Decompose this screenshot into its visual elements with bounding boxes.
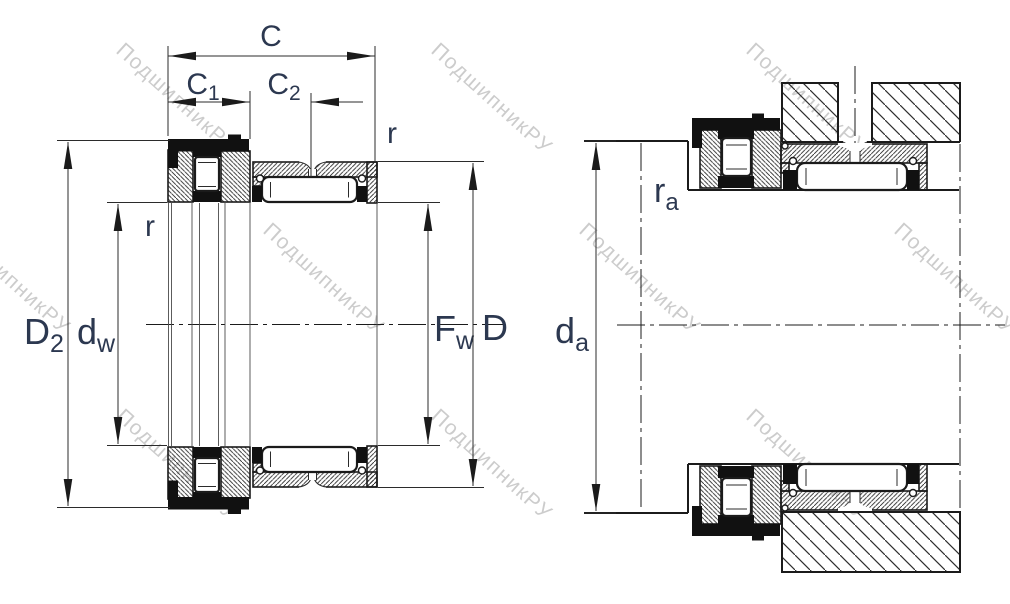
cage-end — [357, 186, 367, 202]
thrust-washer — [700, 466, 721, 524]
dim-da: da — [555, 141, 616, 513]
cage-end — [252, 186, 262, 202]
dim-label-ra: ra — [654, 172, 679, 216]
seal-lip — [692, 506, 702, 536]
inner-collar — [221, 447, 250, 498]
thrust-cage-band — [718, 466, 754, 478]
thrust-cage-band — [193, 447, 221, 458]
cage-end — [783, 464, 797, 484]
dim-label-C1: C1 — [186, 68, 219, 105]
seal-cap — [168, 497, 249, 514]
seal-lip — [692, 118, 702, 148]
dim-label-C: C — [260, 20, 282, 53]
sleeve-flange — [919, 163, 927, 190]
needle-roller — [262, 177, 357, 202]
seal-cap — [692, 524, 780, 541]
right-view-mounted-section: da ra — [555, 66, 1005, 572]
thrust-roller — [722, 138, 751, 176]
watermark-layer: ПодшипникРУ ПодшипникРУ ПодшипникРУ Подш… — [0, 39, 1010, 525]
inner-collar — [752, 466, 781, 524]
seal-lip — [168, 139, 178, 168]
bore-corner-radius — [782, 505, 788, 511]
watermark-text: ПодшипникРУ — [427, 39, 557, 159]
bearing-technical-drawing: ПодшипникРУ ПодшипникРУ ПодшипникРУ Подш… — [0, 0, 1010, 604]
sleeve-flange — [367, 162, 377, 203]
thrust-roller — [722, 478, 751, 516]
dim-label-C2: C2 — [267, 68, 300, 105]
watermark-text: ПодшипникРУ — [427, 405, 557, 525]
dim-label-dw: dw — [77, 311, 116, 358]
cage-end — [783, 170, 797, 190]
cage-end — [357, 447, 367, 463]
needle-roller — [797, 163, 907, 190]
left-view-cross-section: C C1 C2 D2 dw — [24, 20, 508, 514]
retainer-pin — [790, 490, 797, 497]
cage-end — [907, 464, 919, 484]
inner-collar — [221, 151, 250, 202]
thrust-cage-band — [718, 176, 754, 188]
lower-section — [168, 446, 377, 514]
needle-roller — [262, 447, 357, 472]
upper-section — [168, 135, 377, 204]
thrust-washer — [700, 130, 721, 188]
dim-label-D: D — [482, 307, 508, 348]
watermark-text: ПодшипникРУ — [575, 219, 705, 339]
retainer-pin — [359, 467, 366, 474]
sleeve-flange — [367, 446, 377, 487]
retainer-pin — [257, 467, 264, 474]
cage-end — [252, 447, 262, 463]
dim-label-Fw: Fw — [434, 308, 475, 355]
inner-collar — [752, 130, 781, 188]
needle-roller — [797, 464, 907, 491]
retainer-pin — [359, 175, 366, 182]
cage-end — [907, 170, 919, 190]
housing-bottom — [782, 512, 960, 572]
watermark-text: ПодшипникРУ — [259, 219, 389, 339]
seal-cap — [692, 114, 780, 131]
seal-lip — [168, 481, 178, 510]
watermark-text: ПодшипникРУ — [890, 219, 1010, 339]
sleeve-flange — [919, 464, 927, 491]
retainer-pin — [790, 158, 797, 165]
dim-label-r-outer: r — [387, 117, 397, 150]
retainer-pin — [910, 490, 917, 497]
lubrication-hole — [850, 151, 860, 163]
shaft — [584, 141, 959, 513]
bore-corner-radius — [782, 143, 788, 149]
retainer-pin — [910, 158, 917, 165]
dim-label-r-inner: r — [145, 210, 155, 243]
dim-label-da: da — [555, 310, 589, 357]
thrust-cage-band — [193, 191, 221, 202]
retainer-pin — [257, 175, 264, 182]
